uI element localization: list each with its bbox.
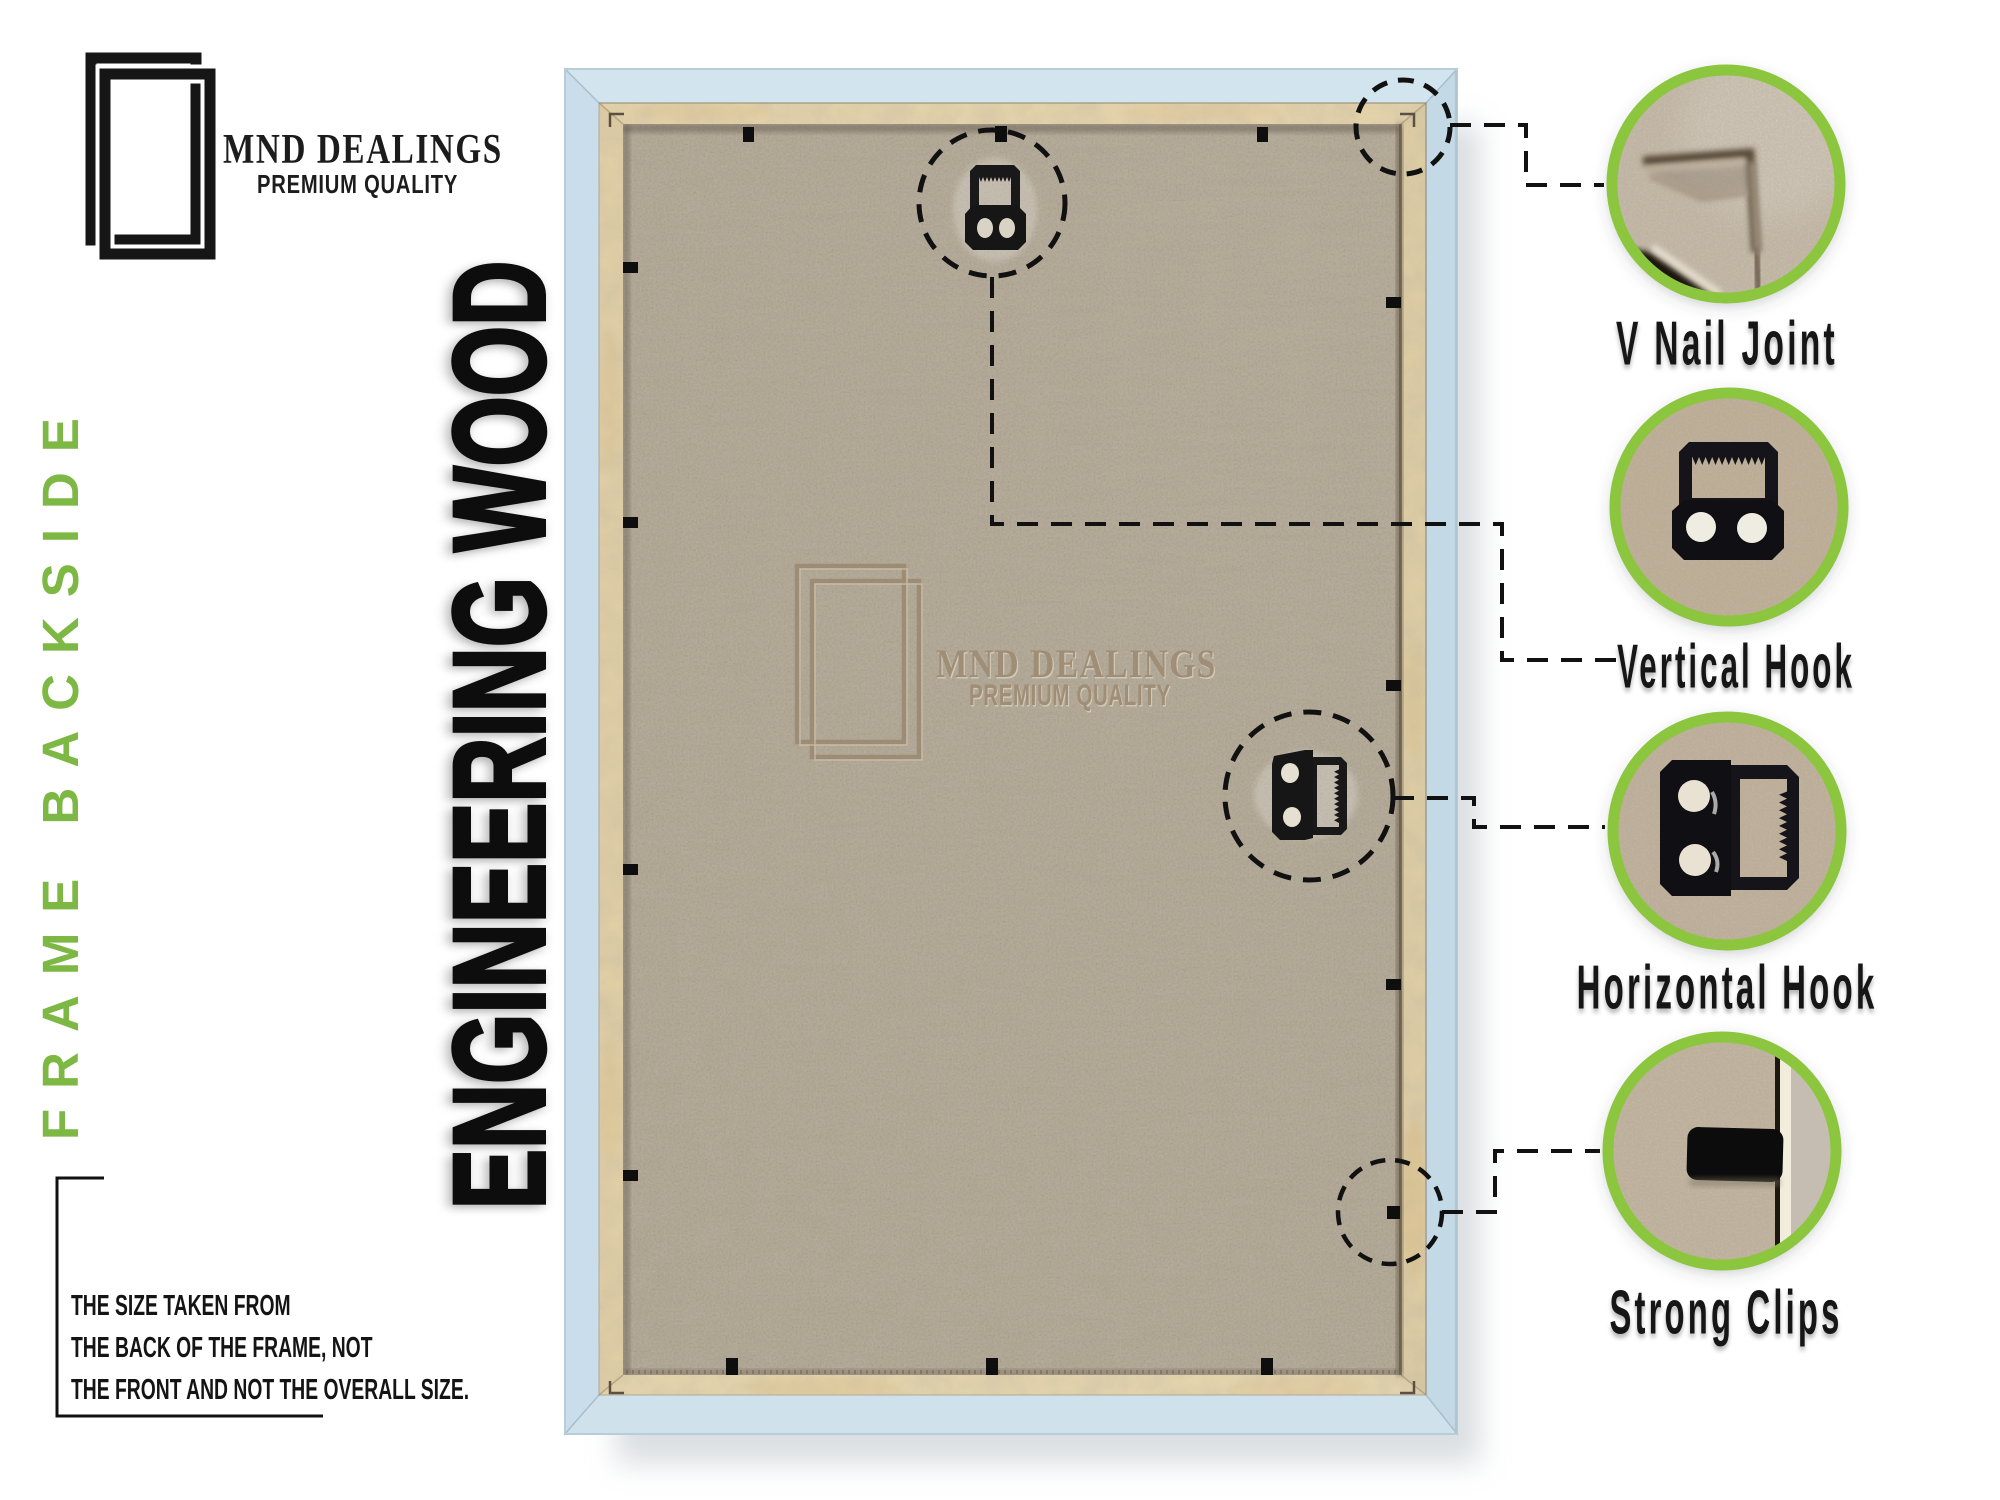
svg-text:ENGINEERING WOOD: ENGINEERING WOOD	[427, 261, 572, 1210]
